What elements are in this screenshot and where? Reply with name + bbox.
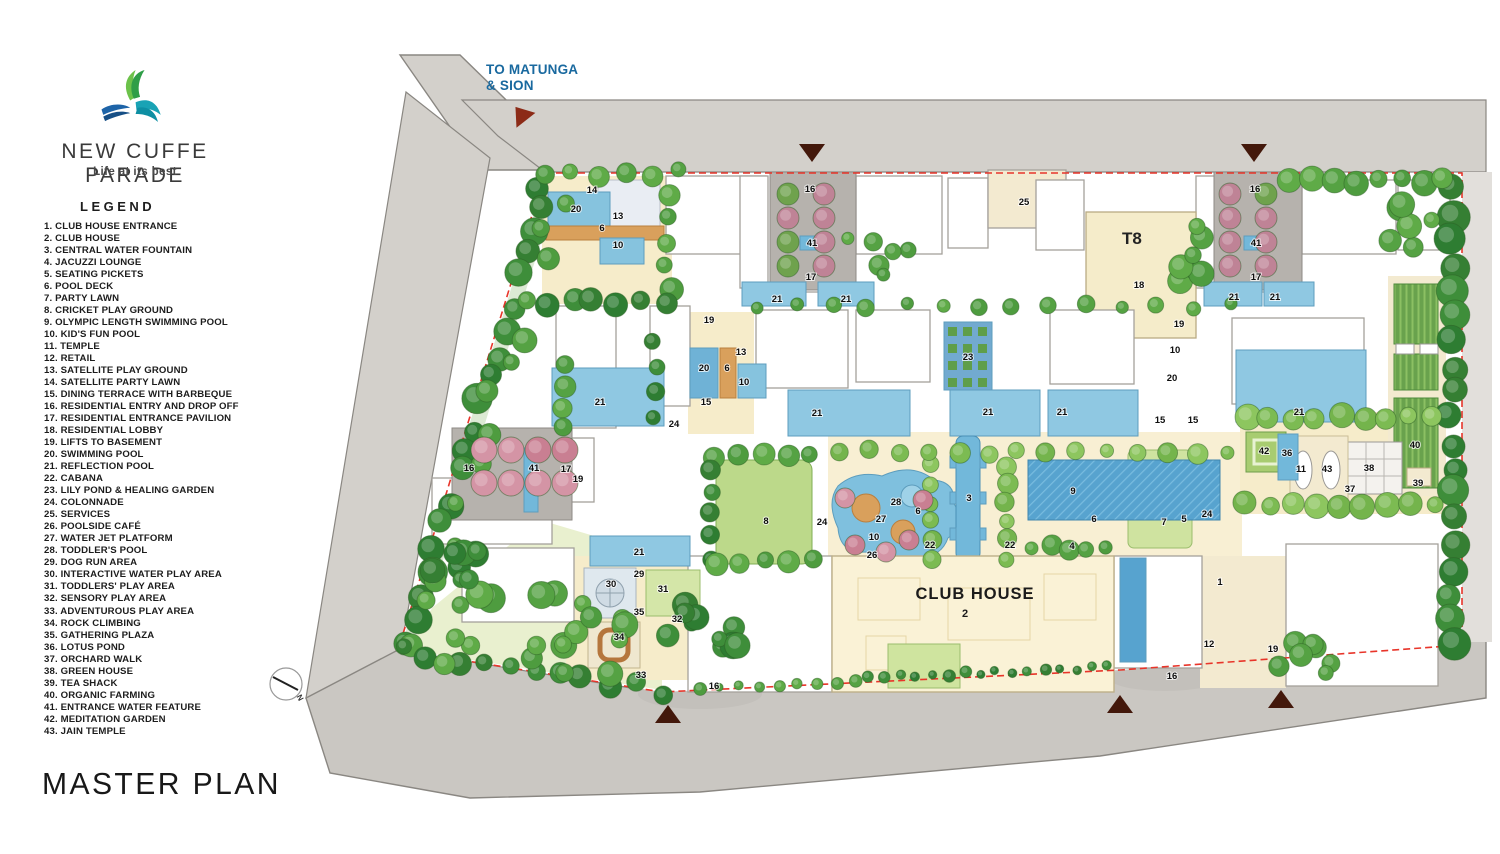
legend-item: 33. ADVENTUROUS PLAY AREA [44, 606, 239, 618]
plan-number-label: 10 [613, 240, 624, 251]
plan-number-label: 19 [704, 315, 715, 326]
plan-number-label: 21 [1294, 407, 1305, 418]
brand-name: NEW CUFFE PARADE [10, 140, 260, 188]
legend-item: 14. SATELLITE PARTY LAWN [44, 377, 239, 389]
plan-number-label: 22 [1005, 540, 1016, 551]
legend-item: 8. CRICKET PLAY GROUND [44, 305, 239, 317]
plan-number-label: 16 [805, 184, 816, 195]
legend-item: 26. POOLSIDE CAFÉ [44, 521, 239, 533]
plan-number-label: 24 [817, 517, 828, 528]
legend-item: 37. ORCHARD WALK [44, 654, 239, 666]
legend-item: 41. ENTRANCE WATER FEATURE [44, 702, 239, 714]
legend-item: 18. RESIDENTIAL LOBBY [44, 425, 239, 437]
plan-number-label: 17 [806, 272, 817, 283]
tower-building [948, 178, 988, 248]
plan-number-label: 21 [812, 408, 823, 419]
north-compass-icon: N [266, 664, 308, 706]
plan-number-label: 36 [1282, 448, 1293, 459]
legend-item: 36. LOTUS POND [44, 642, 239, 654]
plan-number-label: 19 [573, 474, 584, 485]
legend-item: 39. TEA SHACK [44, 678, 239, 690]
plan-number-label: 17 [1251, 272, 1262, 283]
plan-number-label: 23 [963, 352, 974, 363]
plan-number-label: 24 [669, 419, 680, 430]
plan-number-label: 32 [672, 614, 683, 625]
legend-item: 34. ROCK CLIMBING [44, 618, 239, 630]
plan-number-label: 10 [739, 377, 750, 388]
plan-number-label: 41 [1251, 238, 1262, 249]
plan-number-label: 9 [1070, 486, 1075, 497]
clubhouse-layer [832, 556, 1114, 692]
plan-number-label: 22 [925, 540, 936, 551]
plan-number-label: 27 [876, 514, 887, 525]
legend-item: 32. SENSORY PLAY AREA [44, 593, 239, 605]
plan-number-label: 34 [614, 632, 625, 643]
plan-number-label: 21 [841, 294, 852, 305]
plan-number-label: 21 [772, 294, 783, 305]
farm-shed [1420, 344, 1438, 354]
plan-number-label: 19 [1268, 644, 1279, 655]
plan-number-label: 10 [869, 532, 880, 543]
plan-number-label: 16 [464, 463, 475, 474]
plan-number-label: 16 [1250, 184, 1261, 195]
plan-number-label: 31 [658, 584, 669, 595]
legend-item: 15. DINING TERRACE WITH BARBEQUE [44, 389, 239, 401]
road-label-line2: & SION [486, 78, 578, 94]
plan-number-label: 35 [634, 607, 645, 618]
plan-number-label: 7 [1161, 517, 1166, 528]
plan-number-label: 6 [599, 223, 604, 234]
legend-item: 35. GATHERING PLAZA [44, 630, 239, 642]
plan-number-label: 6 [1091, 514, 1096, 525]
legend-item: 13. SATELLITE PLAY GROUND [44, 365, 239, 377]
plan-number-label: 24 [1202, 509, 1213, 520]
legend-item: 40. ORGANIC FARMING [44, 690, 239, 702]
plan-number-label: 42 [1259, 446, 1270, 457]
legend-item: 23. LILY POND & HEALING GARDEN [44, 485, 239, 497]
plan-number-label: 33 [636, 670, 647, 681]
brand-logo [84, 70, 180, 140]
plan-number-label: 18 [1134, 280, 1145, 291]
legend-item: 27. WATER JET PLATFORM [44, 533, 239, 545]
legend-item: 28. TODDLER'S POOL [44, 545, 239, 557]
tower-building [756, 310, 848, 388]
tower-building [1036, 180, 1084, 250]
plan-number-label: 6 [915, 506, 920, 517]
plan-number-label: 40 [1410, 440, 1421, 451]
plan-number-label: 29 [634, 569, 645, 580]
cricket-ground [716, 460, 812, 564]
page-title: MASTER PLAN [42, 766, 281, 802]
organic-farm-plot [1394, 284, 1438, 344]
legend-title: LEGEND [80, 199, 155, 214]
plan-number-label: 26 [867, 550, 878, 561]
legend-item: 43. JAIN TEMPLE [44, 726, 239, 738]
top-road [462, 100, 1486, 172]
plan-number-label: 3 [966, 493, 971, 504]
legend-item: 31. TODDLERS' PLAY AREA [44, 581, 239, 593]
road-destination-label: TO MATUNGA & SION [486, 62, 578, 93]
legend-item: 10. KID'S FUN POOL [44, 329, 239, 341]
plan-number-label: 15 [1188, 415, 1199, 426]
tower-building [856, 310, 930, 382]
legend-item: 21. REFLECTION POOL [44, 461, 239, 473]
legend-item: 38. GREEN HOUSE [44, 666, 239, 678]
clubhouse-side-pool [1120, 558, 1146, 662]
plan-number-label: 14 [587, 185, 598, 196]
legend-item: 2. CLUB HOUSE [44, 233, 239, 245]
legend-item: 4. JACUZZI LOUNGE [44, 257, 239, 269]
plan-number-label: 20 [1167, 373, 1178, 384]
legend-item: 29. DOG RUN AREA [44, 557, 239, 569]
retail-building [1286, 544, 1438, 686]
master-plan-page: 1420136101641172121251816411721211913206… [0, 0, 1500, 854]
plan-number-label: 41 [529, 463, 540, 474]
plan-number-label: 30 [606, 579, 617, 590]
plan-number-label: 39 [1413, 478, 1424, 489]
brand-tagline: Life at its best [10, 166, 260, 178]
plan-number-label: 16 [1167, 671, 1178, 682]
plan-number-label: 16 [709, 681, 720, 692]
plan-number-label: 17 [561, 464, 572, 475]
plan-number-label: 43 [1322, 464, 1333, 475]
plan-number-label: 13 [613, 211, 624, 222]
club-house-building [832, 556, 1114, 692]
road-label-line1: TO MATUNGA [486, 62, 578, 78]
legend-list: 1. CLUB HOUSE ENTRANCE2. CLUB HOUSE3. CE… [44, 221, 239, 738]
plan-number-label: 21 [1057, 407, 1068, 418]
green-house [1348, 442, 1402, 494]
plan-number-label: 21 [1229, 292, 1240, 303]
legend-item: 24. COLONNADE [44, 497, 239, 509]
plan-number-label: 37 [1345, 484, 1356, 495]
legend-item: 22. CABANA [44, 473, 239, 485]
legend-item: 7. PARTY LAWN [44, 293, 239, 305]
plan-number-label: 19 [1174, 319, 1185, 330]
legend-item: 30. INTERACTIVE WATER PLAY AREA [44, 569, 239, 581]
organic-farm-plot [1394, 354, 1438, 390]
legend-item: 5. SEATING PICKETS [44, 269, 239, 281]
t8-tower-label: T8 [1122, 229, 1142, 249]
plan-number-label: 20 [571, 204, 582, 215]
legend-item: 20. SWIMMING POOL [44, 449, 239, 461]
plan-number-label: 21 [634, 547, 645, 558]
legend-item: 1. CLUB HOUSE ENTRANCE [44, 221, 239, 233]
legend-item: 42. MEDITATION GARDEN [44, 714, 239, 726]
legend-item: 19. LIFTS TO BASEMENT [44, 437, 239, 449]
tower-building [688, 556, 832, 692]
farm-shed [1396, 344, 1414, 354]
plan-number-label: 13 [736, 347, 747, 358]
plan-number-label: 4 [1069, 541, 1075, 552]
plan-number-label: 11 [1296, 464, 1307, 475]
plan-number-label: 15 [1155, 415, 1166, 426]
legend-item: 17. RESIDENTIAL ENTRANCE PAVILION [44, 413, 239, 425]
club-house-label: CLUB HOUSE [880, 585, 1070, 604]
reflection-pool [950, 390, 1040, 436]
legend-item: 3. CENTRAL WATER FOUNTAIN [44, 245, 239, 257]
plan-number-label: 20 [699, 363, 710, 374]
legend-item: 16. RESIDENTIAL ENTRY AND DROP OFF [44, 401, 239, 413]
legend-item: 9. OLYMPIC LENGTH SWIMMING POOL [44, 317, 239, 329]
legend-item: 25. SERVICES [44, 509, 239, 521]
tower-building [740, 176, 768, 288]
plan-number-label: 21 [1270, 292, 1281, 303]
legend-item: 12. RETAIL [44, 353, 239, 365]
club-house-number: 2 [930, 608, 1000, 620]
plan-number-label: 10 [1170, 345, 1181, 356]
plan-number-label: 12 [1204, 639, 1215, 650]
plan-number-label: 21 [595, 397, 606, 408]
plan-number-label: 8 [763, 516, 768, 527]
plan-number-label: 38 [1364, 463, 1375, 474]
plan-number-label: 28 [891, 497, 902, 508]
plan-number-label: 41 [807, 238, 818, 249]
plan-number-label: 21 [983, 407, 994, 418]
reflection-pool [788, 390, 910, 436]
plan-number-label: 25 [1019, 197, 1030, 208]
legend-item: 11. TEMPLE [44, 341, 239, 353]
legend-item: 6. POOL DECK [44, 281, 239, 293]
olympic-pool [1028, 460, 1220, 520]
plan-number-label: 1 [1217, 577, 1223, 588]
plan-number-label: 6 [724, 363, 729, 374]
plan-number-label: 5 [1181, 514, 1187, 525]
plan-number-label: 15 [701, 397, 712, 408]
tower-building [1050, 310, 1134, 384]
